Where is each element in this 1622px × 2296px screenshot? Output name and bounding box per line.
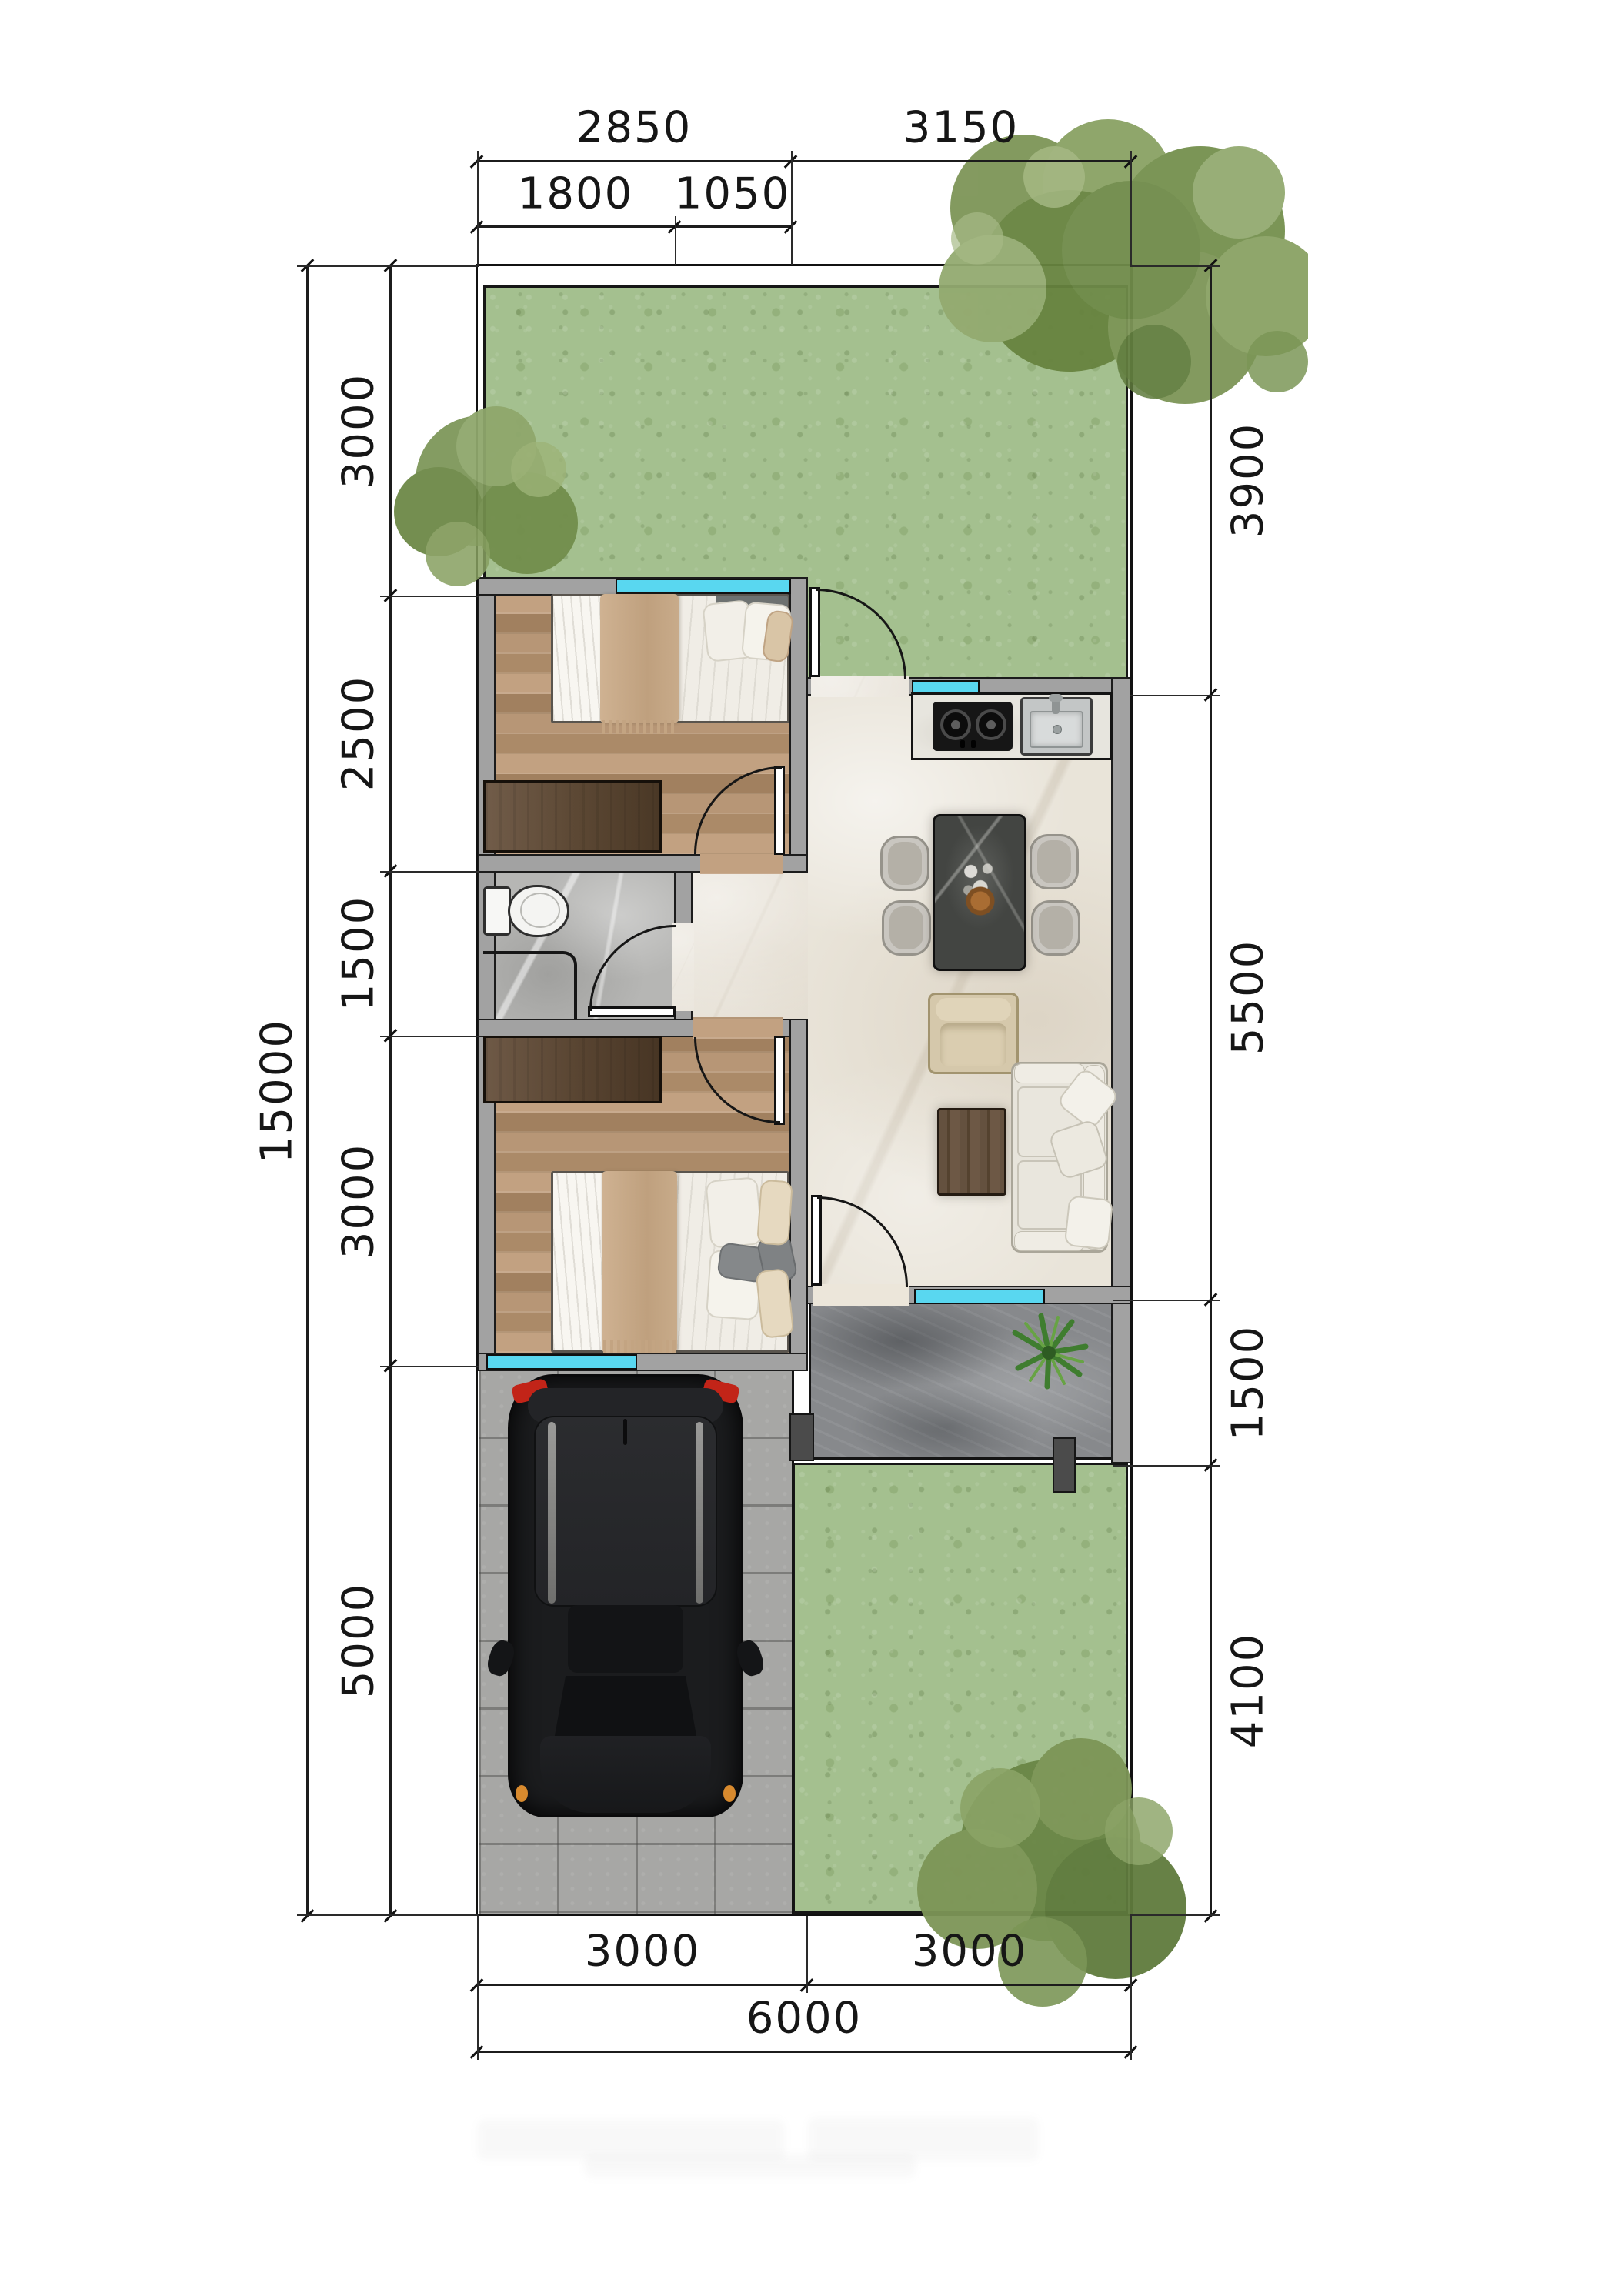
floor-plan-canvas: 2850 3150 1800 1050 15000 3000 2500 1500… bbox=[0, 0, 1622, 2296]
tree-front-garden-icon bbox=[885, 1716, 1193, 2024]
tree-left-icon bbox=[369, 385, 592, 600]
dim-label: 2850 bbox=[576, 103, 693, 153]
dim-label: 2500 bbox=[334, 676, 384, 792]
watermark bbox=[585, 2154, 916, 2178]
dim-label: 3900 bbox=[1223, 422, 1273, 539]
dim-label: 15000 bbox=[252, 1019, 302, 1163]
dim-label: 3000 bbox=[334, 1143, 384, 1260]
dim-line-left-segments bbox=[389, 265, 392, 1916]
dim-label: 3150 bbox=[903, 103, 1020, 153]
dim-label: 3000 bbox=[334, 373, 384, 489]
dim-label: 3000 bbox=[585, 1927, 701, 1977]
dim-label: 1050 bbox=[675, 169, 791, 219]
dim-line-bottom-overall bbox=[477, 2051, 1133, 2053]
dim-line-left-overall bbox=[306, 265, 309, 1916]
dim-label: 6000 bbox=[746, 1994, 863, 2044]
dim-line-right bbox=[1210, 265, 1212, 1916]
dim-label: 1500 bbox=[334, 896, 384, 1012]
dim-label: 3000 bbox=[912, 1927, 1028, 1977]
dim-label: 4100 bbox=[1223, 1633, 1273, 1749]
dim-label: 5500 bbox=[1223, 939, 1273, 1056]
dim-line-top-row1 bbox=[477, 160, 1133, 162]
dim-line-top-row2 bbox=[477, 225, 793, 228]
fern-plant-icon bbox=[999, 1299, 1099, 1399]
dim-label: 1500 bbox=[1223, 1325, 1273, 1441]
dim-label: 5000 bbox=[334, 1583, 384, 1699]
dim-label: 1800 bbox=[518, 169, 634, 219]
